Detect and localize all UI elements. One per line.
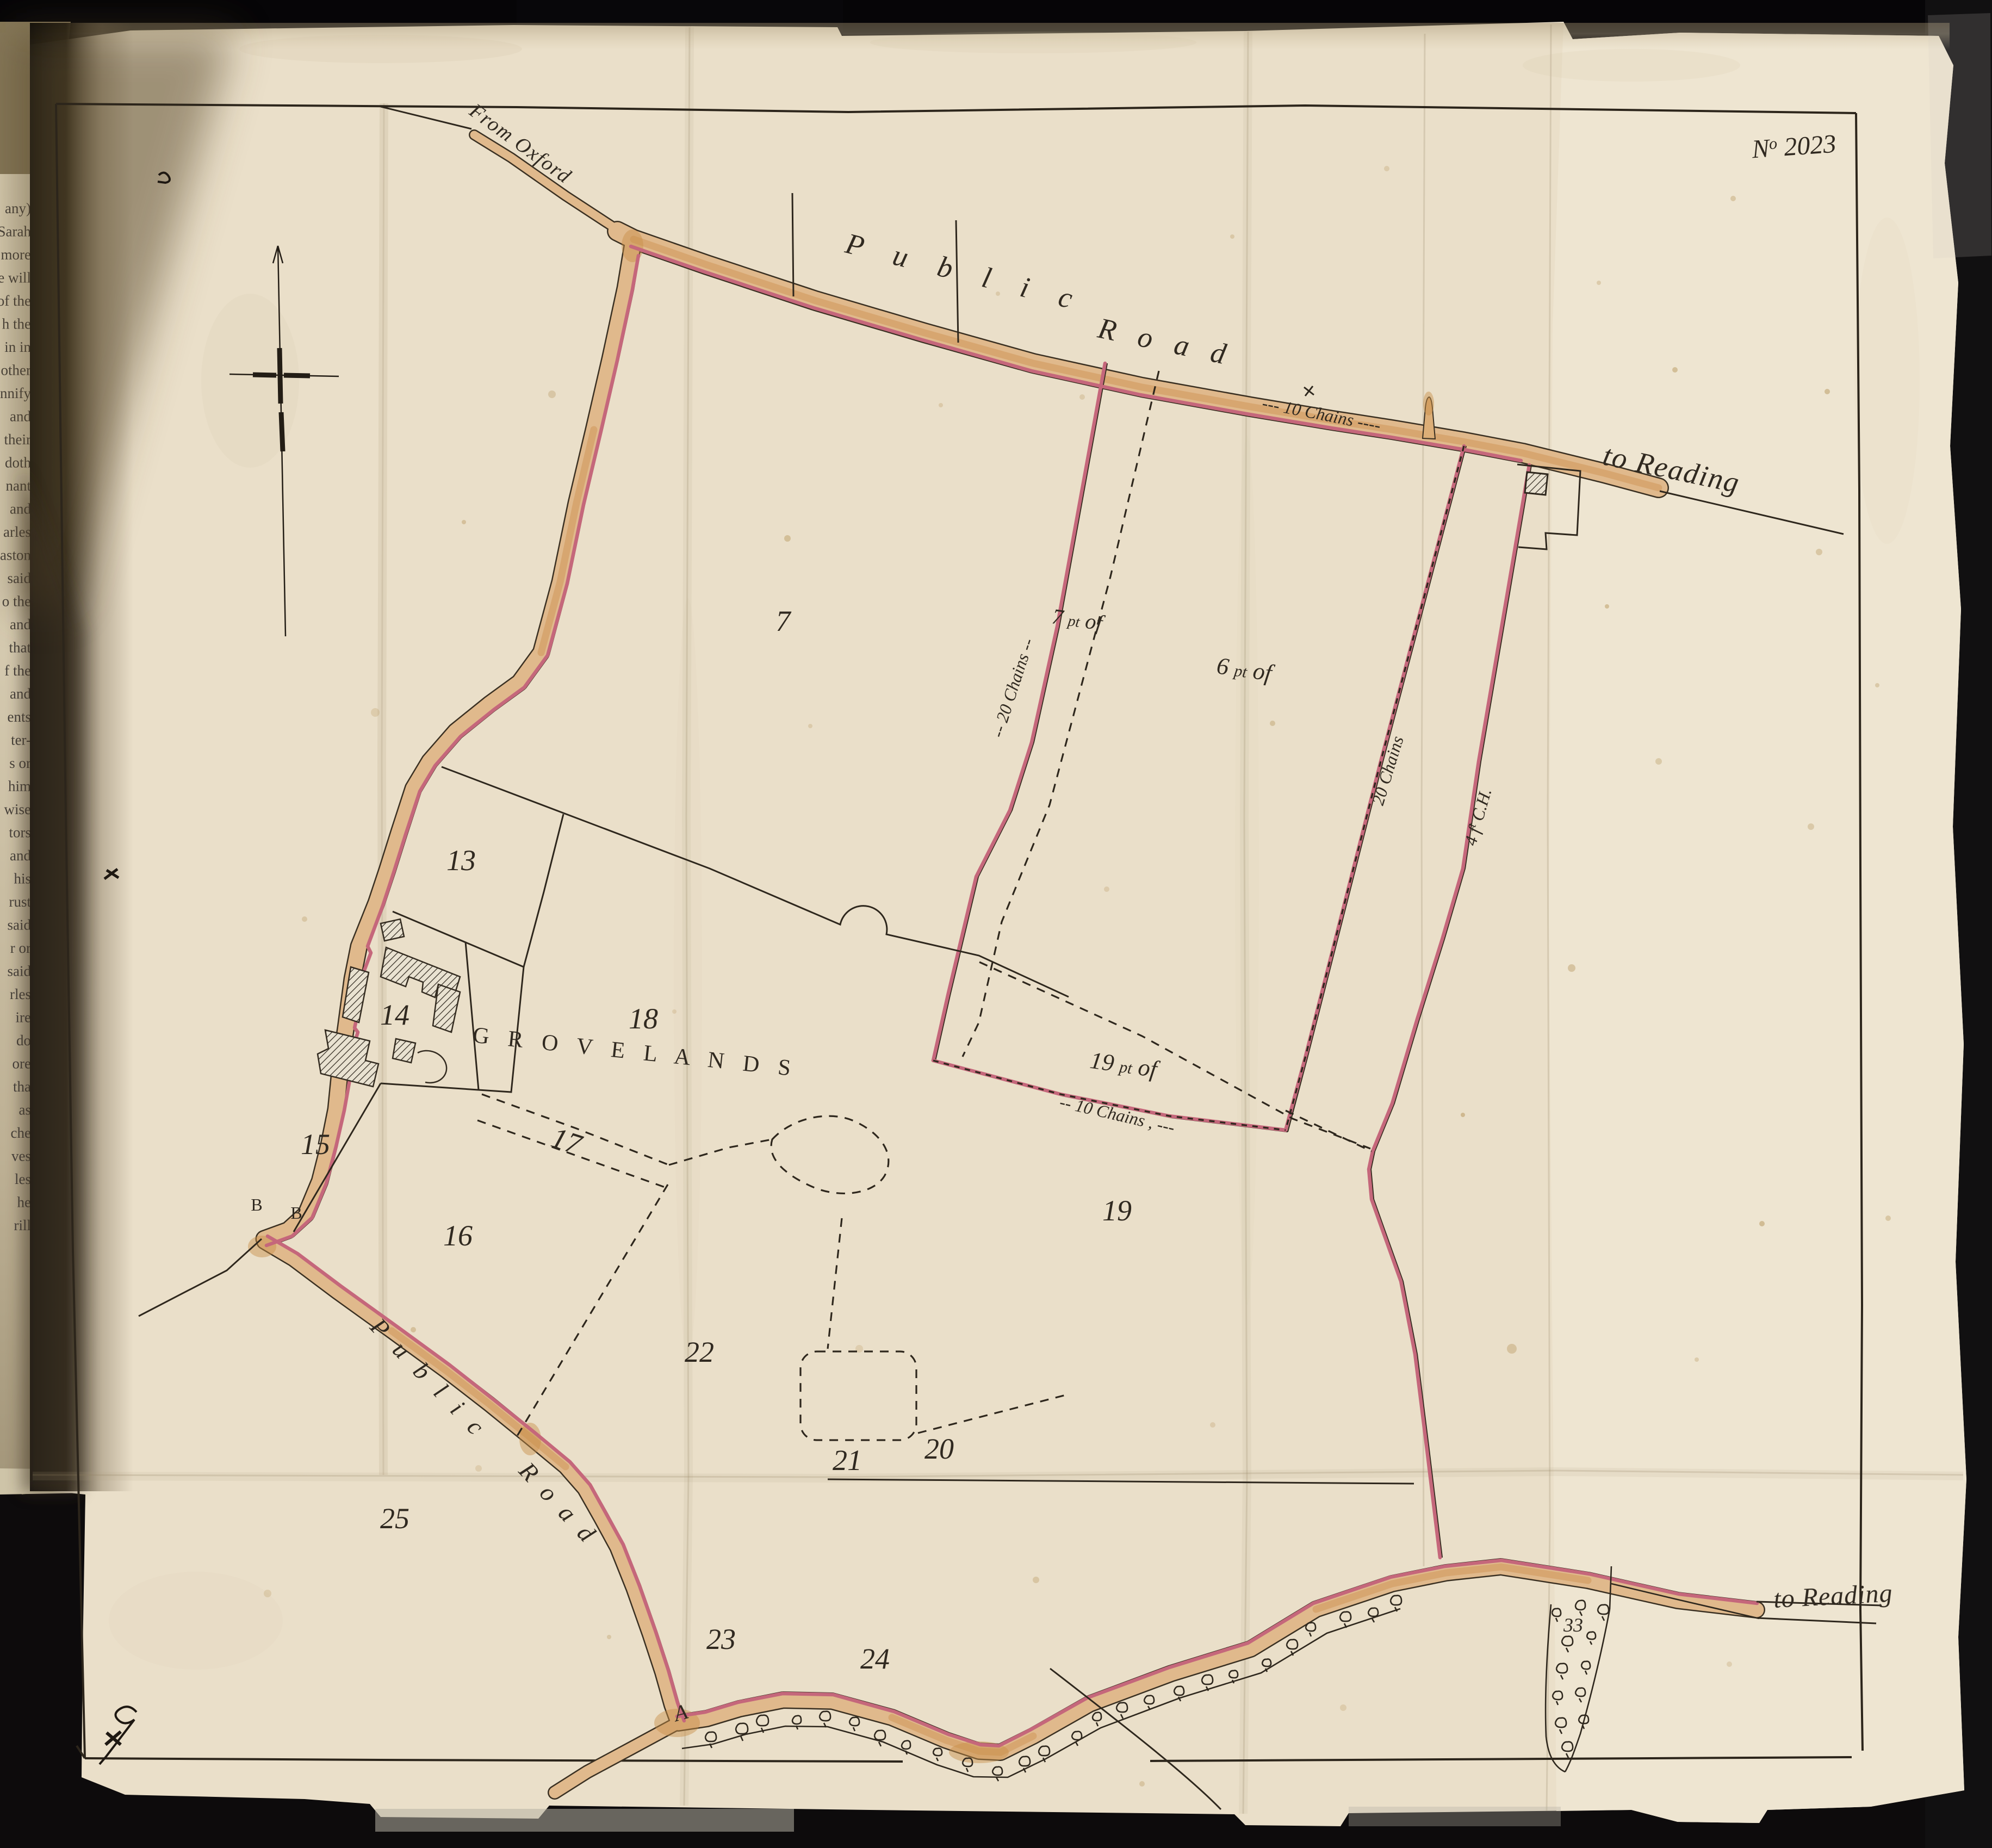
svg-text:33: 33 [1563,1614,1583,1636]
svg-text:18: 18 [629,1002,658,1035]
svg-text:24: 24 [860,1642,890,1675]
svg-text:22: 22 [685,1336,714,1368]
svg-text:13: 13 [446,844,476,877]
svg-text:20: 20 [924,1432,954,1465]
svg-text:B: B [251,1195,262,1214]
svg-text:14: 14 [380,999,409,1031]
svg-text:25: 25 [380,1502,409,1535]
svg-text:No 2023: No 2023 [1751,129,1837,164]
svg-text:7: 7 [776,605,792,637]
svg-text:23: 23 [706,1623,736,1655]
svg-text:21: 21 [833,1444,862,1477]
svg-text:16: 16 [443,1219,473,1252]
svg-text:B: B [290,1203,302,1223]
svg-text:15: 15 [301,1128,330,1161]
svg-text:19: 19 [1102,1194,1132,1227]
